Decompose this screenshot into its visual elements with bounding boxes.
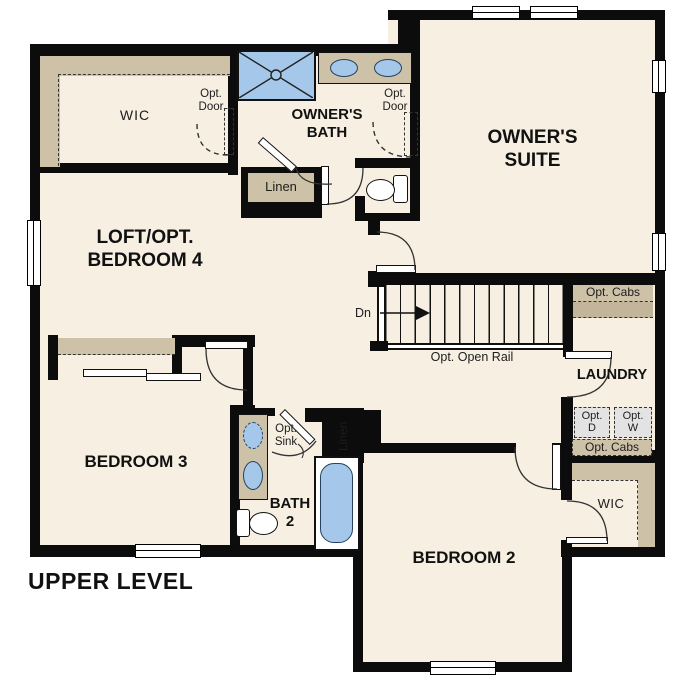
opt-door-label: Opt. Door: [370, 88, 420, 114]
stair-newel-post: [368, 271, 386, 287]
door-leaf-water-closet: [321, 166, 329, 205]
wall: [353, 443, 516, 453]
room-label-bedroom3: BEDROOM 3: [56, 452, 216, 473]
door-leaf-owners-suite: [376, 265, 416, 273]
owners-suite-line1: OWNER'S: [455, 126, 610, 149]
floor-plan: WIC Opt. Door OWNER'S BATH Opt. Door OWN…: [0, 0, 687, 687]
opt-door-label-line1: Opt.: [370, 88, 420, 101]
window: [652, 233, 666, 271]
wall: [368, 221, 380, 235]
bath2-line2: 2: [260, 513, 320, 531]
sink: [330, 59, 358, 77]
window: [472, 6, 520, 19]
window: [135, 544, 201, 558]
door-leaf-bedroom2: [552, 444, 561, 490]
room-label-bath2: BATH 2: [260, 495, 320, 532]
opt-door-pocket: [404, 112, 418, 156]
toilet-bowl: [366, 179, 395, 201]
stairs-stringer: [377, 285, 386, 343]
sink: [243, 461, 263, 490]
wall: [561, 397, 573, 443]
opt-cabs-upper-band2: [573, 302, 653, 318]
sink: [374, 59, 402, 77]
closet-bypass-door: [146, 373, 201, 381]
door-leaf-bedroom3: [205, 341, 248, 349]
opt-dryer-line1: Opt.: [574, 410, 610, 422]
opt-sink-line2: Sink: [262, 436, 310, 449]
shower-glass-icon: [239, 52, 313, 98]
loft-line2: BEDROOM 4: [50, 249, 240, 272]
shower: [237, 50, 316, 101]
plan-title: UPPER LEVEL: [28, 567, 278, 595]
wall: [30, 44, 40, 557]
opt-door-pocket: [224, 108, 234, 155]
wic-shelf: [638, 463, 655, 547]
linen-label: Linen: [248, 180, 314, 195]
opt-washer-line1: Opt.: [614, 410, 652, 422]
door-leaf-wic2: [566, 537, 608, 544]
owners-bath-line1: OWNER'S: [267, 106, 387, 124]
stairs-treads: [385, 285, 563, 343]
linen-label-vertical: Linen: [329, 414, 357, 458]
wic-shelf: [40, 56, 60, 167]
opt-washer-label: Opt. W: [614, 410, 652, 435]
opt-cabs-lower-label: Opt. Cabs: [572, 441, 652, 454]
room-label-owners-bath: OWNER'S BATH: [267, 106, 387, 143]
toilet-tank: [393, 175, 408, 203]
opt-cabs-upper-label: Opt. Cabs: [573, 286, 653, 299]
owners-suite-line2: SUITE: [455, 149, 610, 172]
window: [27, 220, 41, 286]
stairs-rail-label: Opt. Open Rail: [412, 350, 532, 364]
window: [652, 60, 666, 93]
opt-sink-label: Opt. Sink: [262, 423, 310, 449]
opt-washer-line2: W: [614, 422, 652, 434]
loft-line1: LOFT/OPT.: [50, 226, 240, 249]
window: [430, 661, 496, 675]
wall: [361, 410, 381, 443]
room-label-owners-suite: OWNER'S SUITE: [455, 126, 610, 172]
bathtub: [320, 463, 353, 543]
stairs-dn-label: Dn: [350, 306, 376, 320]
stairs-rail: [377, 343, 563, 350]
closet-shelf: [58, 338, 175, 355]
room-label-wic-owner: WIC: [95, 108, 175, 124]
opt-sink-line1: Opt.: [262, 423, 310, 436]
opt-door-label-line1: Opt.: [186, 88, 236, 101]
window: [530, 6, 578, 19]
optional-sink: [243, 422, 263, 449]
wall: [388, 10, 665, 20]
room-label-loft: LOFT/OPT. BEDROOM 4: [50, 226, 240, 272]
room-label-bedroom2: BEDROOM 2: [388, 548, 540, 569]
room-label-wic-bedroom2: WIC: [583, 497, 639, 512]
opt-door-label: Opt. Door: [186, 88, 236, 114]
room-label-laundry: LAUNDRY: [566, 367, 658, 385]
opt-dryer-line2: D: [574, 422, 610, 434]
owners-bath-line2: BATH: [267, 124, 387, 142]
opt-dryer-label: Opt. D: [574, 410, 610, 435]
toilet-tank: [236, 509, 250, 537]
wall: [562, 547, 572, 672]
wic-shelf: [40, 56, 230, 76]
wall: [368, 273, 665, 285]
stair-newel-post: [370, 341, 388, 351]
wall: [48, 335, 58, 380]
door-leaf-laundry: [565, 351, 612, 359]
opt-door-label-line2: Door: [186, 101, 236, 114]
opt-door-label-line2: Door: [370, 101, 420, 114]
wall: [562, 547, 665, 557]
wall: [563, 278, 573, 357]
closet-bypass-door: [83, 369, 147, 377]
bath2-line1: BATH: [260, 495, 320, 513]
